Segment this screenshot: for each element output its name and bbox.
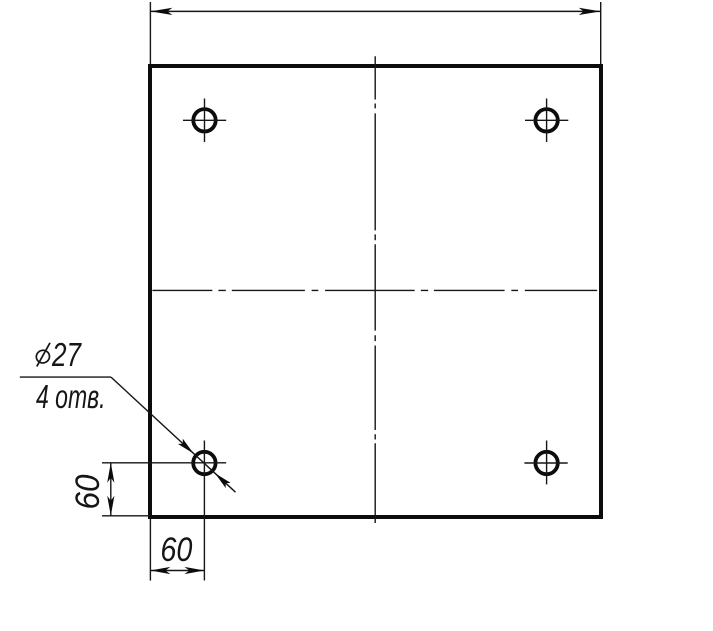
svg-text:60: 60: [160, 531, 192, 569]
svg-text:4 отв.: 4 отв.: [36, 378, 106, 415]
svg-text:60: 60: [69, 474, 107, 509]
svg-text:27: 27: [51, 336, 82, 373]
